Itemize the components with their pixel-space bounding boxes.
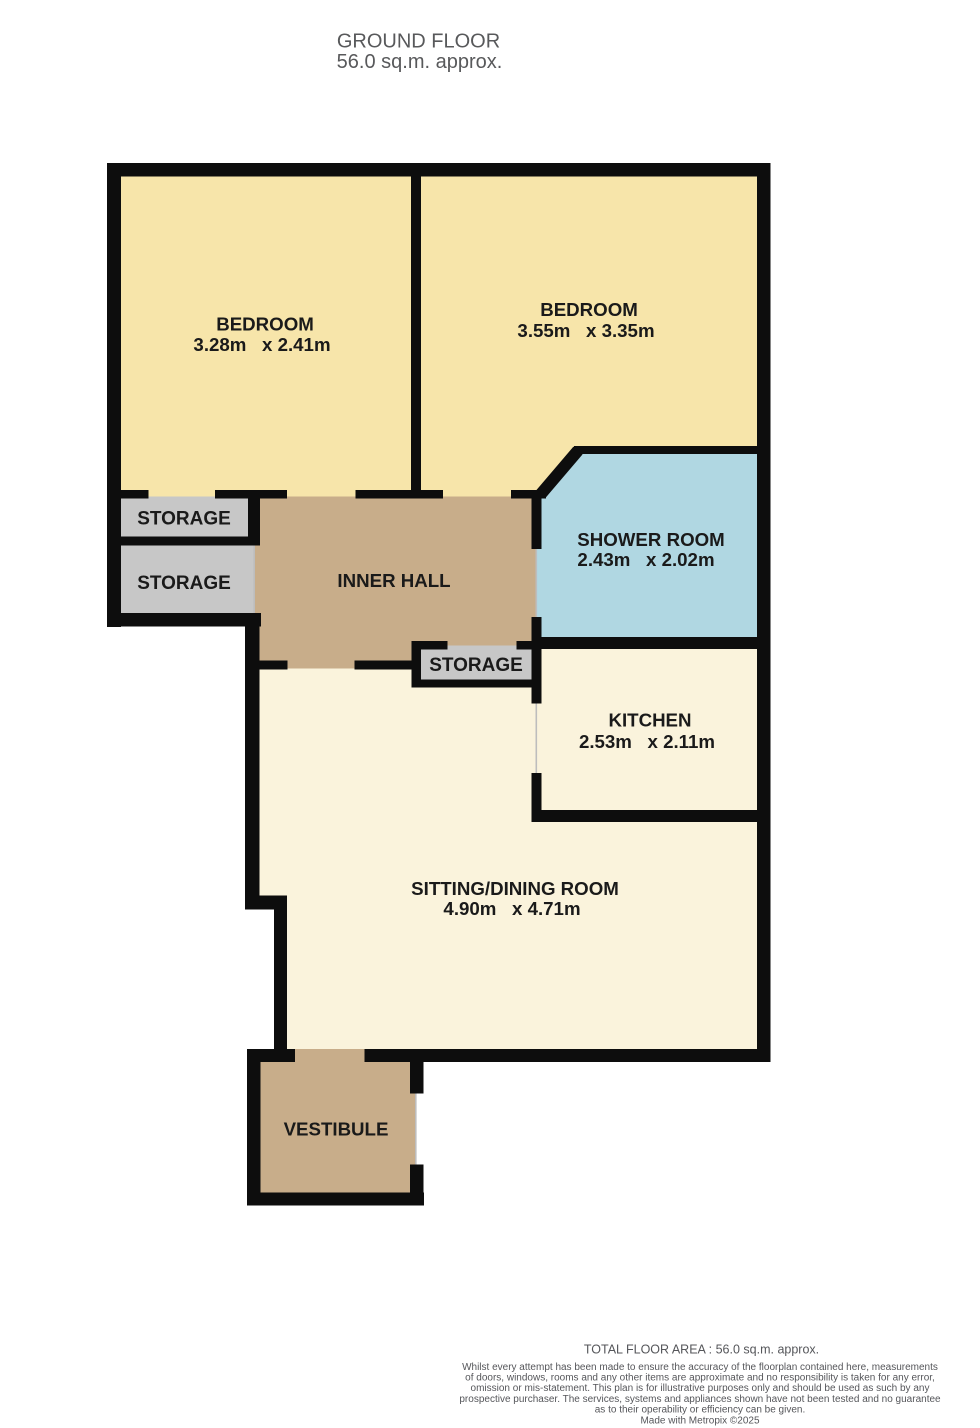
svg-text:STORAGE: STORAGE — [429, 655, 523, 676]
svg-text:omission or mis-statement. Thi: omission or mis-statement. This plan is … — [471, 1383, 930, 1394]
svg-text:2.53m x 2.11m: 2.53m x 2.11m — [579, 731, 715, 752]
svg-text:3.55m x 3.35m: 3.55m x 3.35m — [517, 320, 654, 341]
svg-text:VESTIBULE: VESTIBULE — [284, 1119, 389, 1140]
svg-text:of doors, windows, rooms and a: of doors, windows, rooms and any other i… — [465, 1373, 935, 1384]
svg-text:4.90m x 4.71m: 4.90m x 4.71m — [443, 898, 580, 919]
svg-text:TOTAL FLOOR AREA : 56.0 sq.m.: TOTAL FLOOR AREA : 56.0 sq.m. approx. — [584, 1343, 819, 1357]
svg-text:prospective purchaser. The ser: prospective purchaser. The services, sys… — [459, 1394, 941, 1405]
svg-text:as to their operability or eff: as to their operability or efficiency ca… — [595, 1405, 806, 1416]
svg-text:3.28m x 2.41m: 3.28m x 2.41m — [193, 334, 330, 355]
svg-text:KITCHEN: KITCHEN — [608, 710, 691, 731]
svg-text:Whilst every attempt has been: Whilst every attempt has been made to en… — [462, 1362, 938, 1373]
svg-text:INNER HALL: INNER HALL — [337, 570, 450, 591]
svg-text:SHOWER ROOM: SHOWER ROOM — [577, 529, 724, 550]
svg-text:SITTING/DINING ROOM: SITTING/DINING ROOM — [411, 878, 619, 899]
svg-text:STORAGE: STORAGE — [137, 509, 231, 530]
svg-text:Made with Metropix ©2025: Made with Metropix ©2025 — [640, 1415, 760, 1426]
svg-text:56.0 sq.m. approx.: 56.0 sq.m. approx. — [337, 51, 503, 73]
svg-text:BEDROOM: BEDROOM — [216, 314, 314, 335]
svg-text:GROUND FLOOR: GROUND FLOOR — [337, 31, 500, 53]
svg-text:STORAGE: STORAGE — [137, 573, 231, 594]
svg-text:BEDROOM: BEDROOM — [540, 299, 638, 320]
svg-text:2.43m x 2.02m: 2.43m x 2.02m — [577, 549, 714, 570]
